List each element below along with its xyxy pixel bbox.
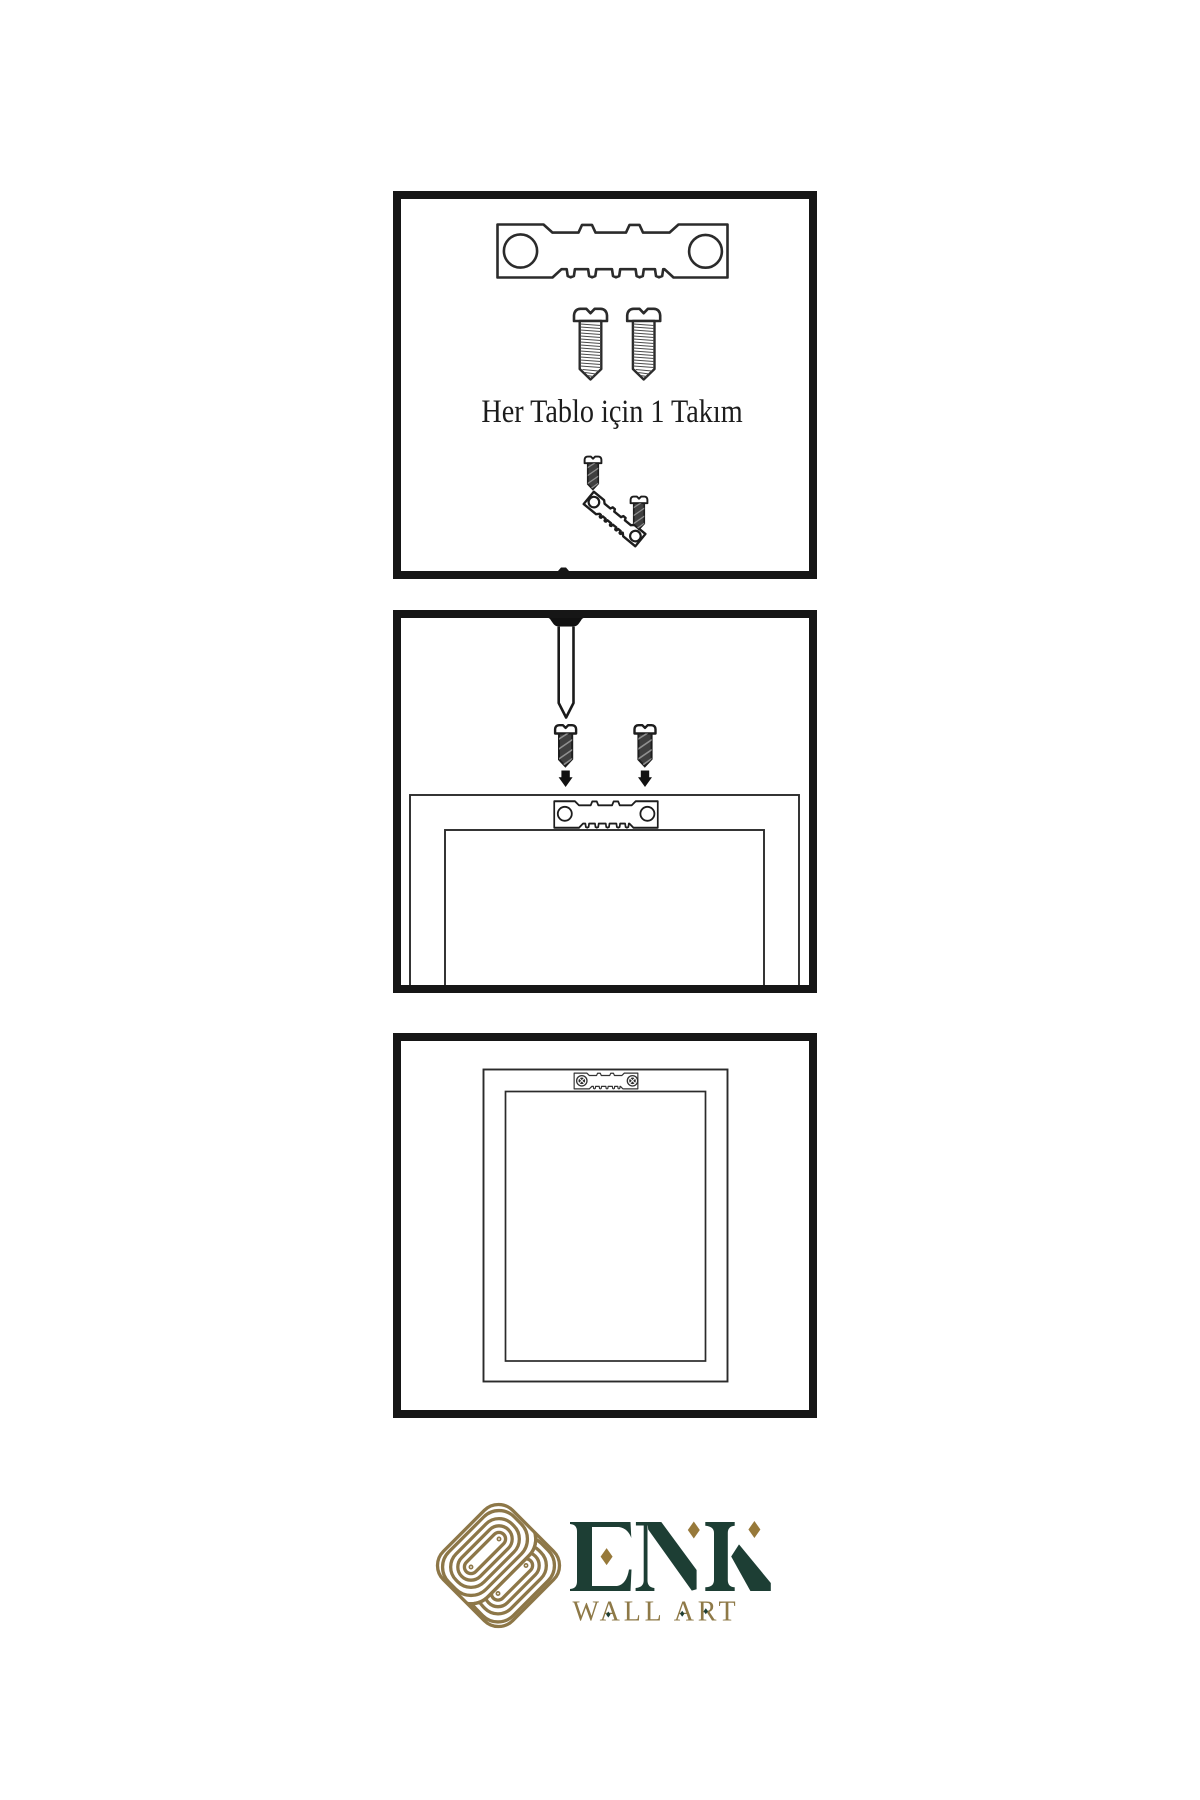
svg-text:Her Tablo için 1 Takım: Her Tablo için 1 Takım xyxy=(481,393,742,430)
svg-text:WALL ART: WALL ART xyxy=(573,1597,740,1628)
